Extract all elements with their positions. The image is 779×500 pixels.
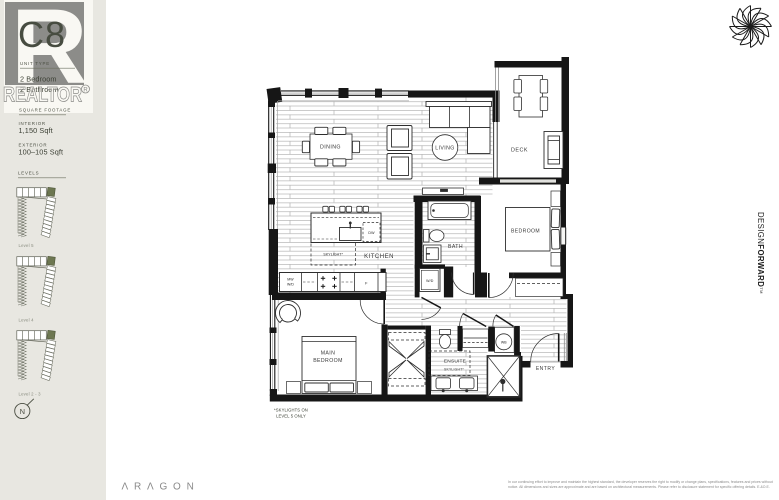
svg-text:DINING: DINING xyxy=(320,145,341,151)
svg-text:BATH: BATH xyxy=(448,244,463,250)
svg-text:LEVELS: LEVELS xyxy=(18,171,39,176)
svg-text:MAIN: MAIN xyxy=(321,351,336,357)
svg-text:W/D: W/D xyxy=(287,283,294,287)
svg-text:notice. All dimensions and siz: notice. All dimensions and sizes are app… xyxy=(508,485,770,489)
svg-text:In our continuing effort to im: In our continuing effort to improve and … xyxy=(508,480,773,484)
svg-text:WB: WB xyxy=(501,340,507,344)
svg-text:R: R xyxy=(83,87,88,93)
svg-text:KITCHEN: KITCHEN xyxy=(364,254,394,260)
svg-text:ΛRΛGON: ΛRΛGON xyxy=(122,482,200,493)
svg-text:BEDROOM: BEDROOM xyxy=(511,228,540,234)
svg-text:LIVING: LIVING xyxy=(435,146,454,152)
svg-text:DESIGNFORWARDTM: DESIGNFORWARDTM xyxy=(756,212,765,294)
svg-text:C8: C8 xyxy=(18,14,66,55)
svg-text:LEVEL 5 ONLY: LEVEL 5 ONLY xyxy=(276,414,306,419)
svg-text:DECK: DECK xyxy=(511,148,528,154)
svg-text:Level 4: Level 4 xyxy=(19,318,35,323)
svg-text:SKYLIGHT*: SKYLIGHT* xyxy=(323,253,343,257)
svg-text:Level 5: Level 5 xyxy=(19,243,35,248)
svg-text:W/D: W/D xyxy=(426,279,434,283)
svg-text:DW: DW xyxy=(368,231,375,235)
svg-text:SKYLIGHT*: SKYLIGHT* xyxy=(444,367,464,371)
svg-text:100–105 Sqft: 100–105 Sqft xyxy=(19,148,64,157)
svg-text:*SKYLIGHTS ON: *SKYLIGHTS ON xyxy=(274,407,308,412)
svg-text:2 Bedroom: 2 Bedroom xyxy=(20,75,57,84)
svg-text:ENSUITE: ENSUITE xyxy=(444,358,466,364)
svg-text:UNIT TYPE: UNIT TYPE xyxy=(20,61,50,66)
svg-text:Level 2 - 3: Level 2 - 3 xyxy=(19,392,42,397)
svg-text:ENTRY: ENTRY xyxy=(536,366,556,372)
svg-text:MW: MW xyxy=(287,278,294,282)
svg-text:N: N xyxy=(20,407,25,416)
svg-text:1,150 Sqft: 1,150 Sqft xyxy=(19,126,53,135)
svg-text:BEDROOM: BEDROOM xyxy=(313,358,343,364)
svg-text:REALTOR: REALTOR xyxy=(3,84,82,107)
svg-text:SQUARE FOOTAGE: SQUARE FOOTAGE xyxy=(19,108,71,113)
